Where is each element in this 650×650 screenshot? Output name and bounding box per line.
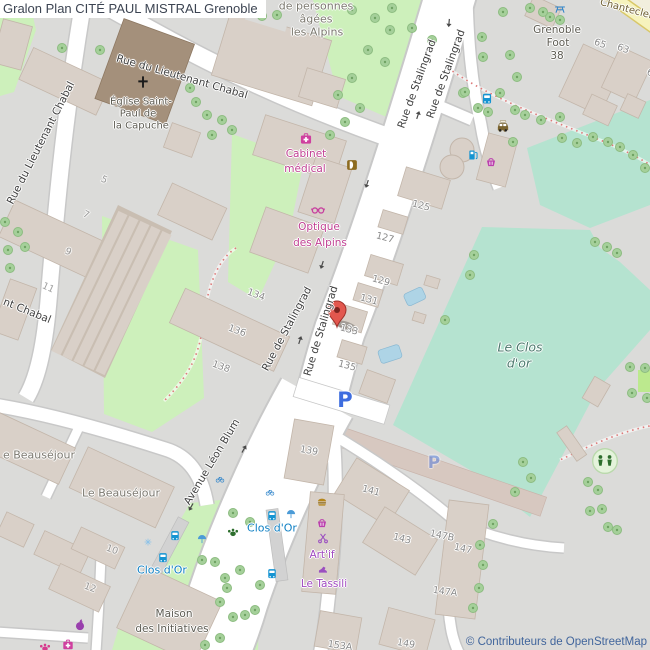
green-patch-east — [638, 370, 650, 392]
bus-stop-icon-1 — [483, 94, 491, 104]
tram-stop-icon-2 — [159, 553, 167, 562]
attribution-link[interactable]: © Contributeurs de OpenStreetMap — [466, 636, 647, 648]
map-canvas[interactable] — [0, 0, 650, 650]
bus-stop-icon-3 — [268, 569, 276, 578]
map-title-text: Gralon Plan CITÉ PAUL MISTRAL Grenoble — [3, 1, 258, 16]
bus-stop-icon-2 — [268, 511, 276, 520]
map-title: Gralon Plan CITÉ PAUL MISTRAL Grenoble — [0, 0, 266, 18]
tram-stop-icon-1 — [171, 531, 179, 540]
playground-icon — [593, 449, 618, 474]
map-page: Rue du Lieutenant ChabalRue du Lieutenan… — [0, 0, 650, 650]
storage-tank-2 — [440, 155, 464, 179]
kebab-icon — [347, 160, 357, 170]
attribution[interactable]: © Contributeurs de OpenStreetMap — [466, 636, 647, 648]
